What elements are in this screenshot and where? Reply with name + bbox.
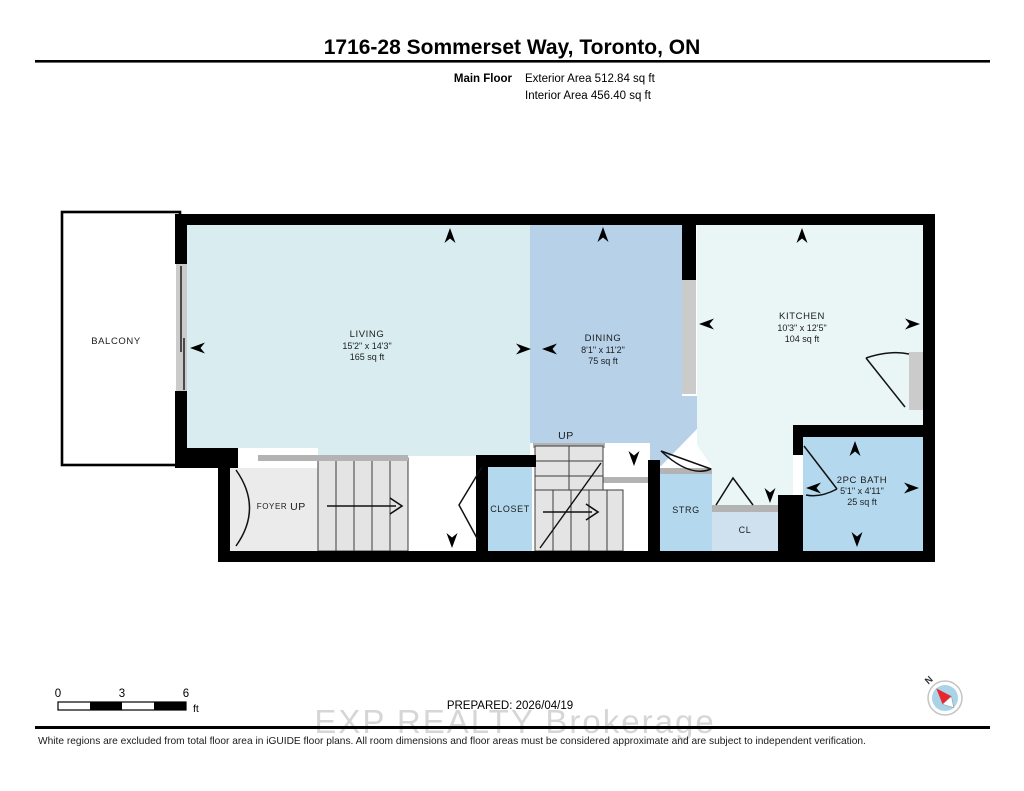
cl-label: CL [739,525,752,535]
exterior-area-label: Exterior Area 512.84 sq ft [525,73,656,85]
foyer-label: FOYER [257,502,288,511]
dining-area: 75 sq ft [588,356,618,366]
dining-name: DINING [585,333,622,344]
kitchen-counter [682,280,696,394]
balcony-sliding-door [176,264,187,391]
living-room-floor [187,224,530,456]
kitchen-area: 104 sq ft [785,334,820,344]
scale-bar: 0 3 6 ft [55,688,199,715]
living-name: LIVING [350,329,385,340]
foyer-stairs [318,458,408,551]
bath-name: 2PC BATH [837,475,888,486]
kitchen-name: KITCHEN [779,311,825,322]
stairs-up-label: UP [558,430,574,442]
balcony-label: BALCONY [91,336,141,347]
scale-tick-0: 0 [55,688,61,700]
scale-unit: ft [193,703,199,715]
closet-label: CLOSET [490,504,530,514]
kitchen-dims: 10'3" x 12'5" [777,323,826,333]
page-title: 1716-28 Sommerset Way, Toronto, ON [324,36,701,59]
disclaimer-text: White regions are excluded from total fl… [38,736,866,747]
entry-door-slab [909,352,923,410]
bath-dims: 5'1" x 4'11" [840,486,884,496]
interior-area-label: Interior Area 456.40 sq ft [525,90,652,102]
cl-sill [712,505,778,512]
scale-tick-6: 6 [183,688,189,700]
footer-rule [35,726,990,729]
foyer-half-wall [258,455,408,461]
scale-tick-3: 3 [119,688,125,700]
brokerage-watermark: EXP REALTY Brokerage [314,703,715,740]
foyer-up-label: UP [290,501,306,513]
strg-label: STRG [672,505,699,515]
floor-label: Main Floor [454,73,513,85]
compass-icon: N [921,672,962,715]
living-dims: 15'2" x 14'3" [342,341,391,351]
dining-dims: 8'1" x 11'2" [581,345,625,355]
floorplan-canvas: 1716-28 Sommerset Way, Toronto, ON Main … [0,0,1024,791]
bath-area: 25 sq ft [847,497,877,507]
living-area: 165 sq ft [350,352,385,362]
header-rule [35,60,990,63]
